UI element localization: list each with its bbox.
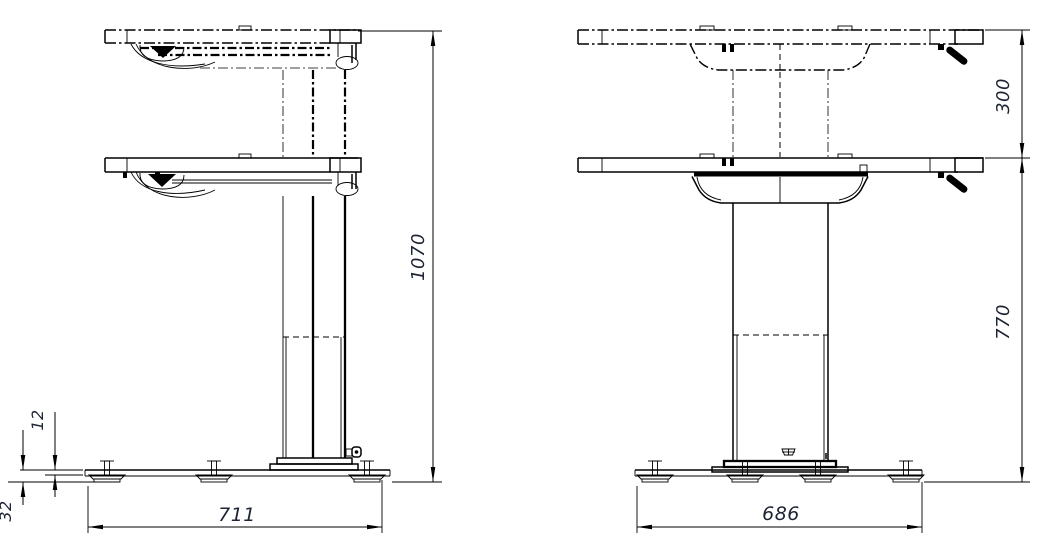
dim-lowered-height: 770 (924, 158, 1030, 482)
dim-label-12: 12 (28, 409, 47, 430)
dim-base-length-side: 711 (88, 480, 382, 533)
dim-lift-travel: 300 (985, 30, 1030, 158)
front-tabletop-raised-phantom (578, 26, 983, 70)
front-release-lever-lowered (938, 172, 969, 194)
side-hook-raised (336, 43, 358, 70)
side-tabletop-lowered (105, 154, 361, 197)
drawing-sheet: 1070 711 12 32 (0, 0, 1039, 539)
dim-label-32: 32 (0, 500, 15, 521)
dim-base-length-front: 686 (637, 482, 922, 533)
front-column-phantom-lines (733, 70, 828, 157)
front-lift-column (733, 203, 828, 461)
dim-overall-height: 1070 (358, 31, 442, 482)
dim-label-1070: 1070 (408, 233, 429, 281)
dim-rail-thickness: 12 (20, 409, 83, 497)
side-view: 1070 711 12 32 (0, 26, 442, 533)
technical-drawing-canvas: 1070 711 12 32 (0, 0, 1039, 539)
side-column-phantom-lines (283, 70, 345, 157)
front-base-assembly (635, 461, 924, 482)
dim-label-686: 686 (762, 503, 800, 525)
side-hook-lowered (336, 172, 358, 196)
front-tabletop-lowered (578, 154, 983, 203)
dim-label-770: 770 (993, 304, 1014, 340)
side-base-assembly (85, 458, 390, 482)
leveling-foot (196, 461, 232, 482)
side-tabletop-raised-phantom (105, 26, 361, 70)
front-column-housing (692, 177, 868, 204)
leveling-foot (888, 461, 924, 482)
side-lift-column (283, 196, 361, 458)
dim-label-711: 711 (218, 504, 256, 526)
side-latch-lowered (131, 172, 215, 197)
leveling-foot (637, 461, 673, 482)
front-view: 300 770 686 (578, 26, 1030, 533)
dim-label-300: 300 (993, 78, 1014, 114)
side-clamp-knob (346, 447, 361, 457)
front-release-lever-raised (938, 44, 969, 66)
front-connector-socket (782, 449, 795, 455)
leveling-foot (89, 461, 125, 482)
